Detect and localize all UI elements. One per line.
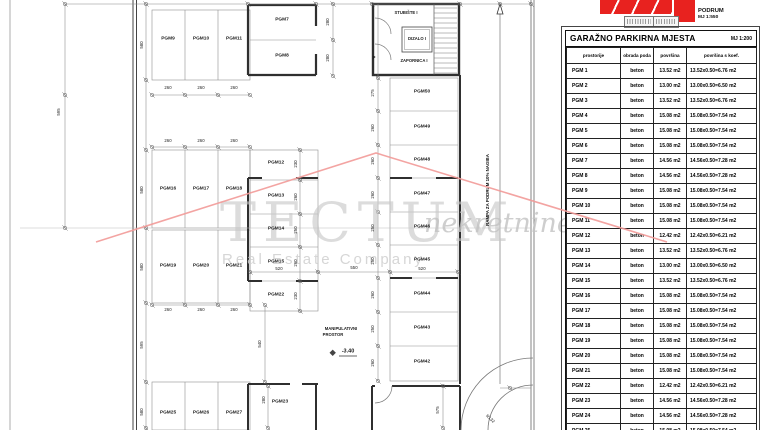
table-cell: 14.56 m2 — [654, 394, 687, 409]
table-cell: beton — [621, 229, 654, 244]
table-cell: beton — [621, 364, 654, 379]
table-column-header: površina — [654, 48, 687, 64]
table-row: PGM 21beton15.08 m215.08x0.50=7.54 m2 — [567, 364, 757, 379]
table-cell: PGM 25 — [567, 424, 621, 430]
table-cell: 15.08 m2 — [654, 334, 687, 349]
table-cell: 15.08x0.50=7.54 m2 — [687, 109, 757, 124]
table-cell: 15.08 m2 — [654, 109, 687, 124]
plan-label: R132 — [485, 414, 496, 424]
table-column-header: obrada poda — [621, 48, 654, 64]
table-cell: 14.56 m2 — [654, 169, 687, 184]
table-cell: beton — [621, 109, 654, 124]
plan-label: PGM7 — [275, 19, 289, 24]
table-cell: 14.56x0.50=7.28 m2 — [687, 409, 757, 424]
plan-label: 260 — [294, 259, 298, 266]
table-cell: beton — [621, 124, 654, 139]
table-cell: PGM 2 — [567, 79, 621, 94]
table-cell: 15.08x0.50=7.54 m2 — [687, 334, 757, 349]
table-column-header: prostorije — [567, 48, 621, 64]
table-row: PGM 1beton13.52 m213.52x0.50=6.76 m2 — [567, 64, 757, 79]
plan-label: PGM45 — [414, 259, 430, 264]
plan-label: PGM9 — [161, 38, 175, 43]
table-cell: 12.42 m2 — [654, 229, 687, 244]
table-cell: PGM 17 — [567, 304, 621, 319]
table-cell: 15.08 m2 — [654, 124, 687, 139]
table-cell: beton — [621, 304, 654, 319]
plan-label: -3.40 — [342, 349, 355, 355]
table-cell: 13.52x0.50=6.76 m2 — [687, 244, 757, 259]
plan-label: PGM22 — [268, 294, 284, 299]
plan-label: 520 — [275, 267, 282, 271]
table-cell: 15.08x0.50=7.54 m2 — [687, 289, 757, 304]
table-cell: beton — [621, 79, 654, 94]
table-row: PGM 2beton13.00 m213.00x0.50=6.50 m2 — [567, 79, 757, 94]
plan-label: 260 — [371, 124, 375, 131]
plan-label: 230 — [294, 292, 298, 299]
plan-label: 580 — [140, 408, 144, 415]
table-cell: 12.42x0.50=6.21 m2 — [687, 229, 757, 244]
table-cell: 13.00x0.50=6.50 m2 — [687, 259, 757, 274]
plan-label: 280 — [326, 54, 330, 61]
table-cell: PGM 13 — [567, 244, 621, 259]
table-cell: 15.08 m2 — [654, 139, 687, 154]
table-cell: PGM 1 — [567, 64, 621, 79]
table-cell: 14.56x0.50=7.28 m2 — [687, 154, 757, 169]
table-cell: 14.56 m2 — [654, 154, 687, 169]
plan-label: PGM21 — [226, 265, 242, 270]
table-cell: beton — [621, 64, 654, 79]
table-cell: 15.08x0.50=7.54 m2 — [687, 139, 757, 154]
table-row: PGM 18beton15.08 m215.08x0.50=7.54 m2 — [567, 319, 757, 334]
table-cell: beton — [621, 244, 654, 259]
table-cell: 13.00 m2 — [654, 79, 687, 94]
table-cell: PGM 24 — [567, 409, 621, 424]
plan-label: 260 — [371, 359, 375, 366]
plan-label: 280 — [326, 18, 330, 25]
table-cell: 15.08x0.50=7.54 m2 — [687, 364, 757, 379]
table-cell: 13.52 m2 — [654, 64, 687, 79]
table-cell: PGM 8 — [567, 169, 621, 184]
table-cell: beton — [621, 349, 654, 364]
plan-label: PGM47 — [414, 193, 430, 198]
plan-label: 580 — [140, 263, 144, 270]
table-cell: 13.52 m2 — [654, 244, 687, 259]
table-cell: 15.08 m2 — [654, 319, 687, 334]
table-cell: 13.52 m2 — [654, 94, 687, 109]
table-cell: 12.42x0.50=6.21 m2 — [687, 379, 757, 394]
plan-label: 280 — [262, 396, 266, 403]
parking-table: GARAŽNO PARKIRNA MJESTA MJ 1:200 prostor… — [565, 30, 757, 430]
table-cell: 15.08 m2 — [654, 199, 687, 214]
plan-label: 580 — [140, 41, 144, 48]
table-cell: beton — [621, 289, 654, 304]
table-scale: MJ 1:200 — [731, 36, 756, 42]
table-cell: PGM 10 — [567, 199, 621, 214]
table-cell: beton — [621, 139, 654, 154]
table-row: PGM 12beton12.42 m212.42x0.50=6.21 m2 — [567, 229, 757, 244]
table-cell: PGM 19 — [567, 334, 621, 349]
table-row: PGM 24beton14.56 m214.56x0.50=7.28 m2 — [567, 409, 757, 424]
plan-label: PGM27 — [226, 412, 242, 417]
table-cell: beton — [621, 184, 654, 199]
table-cell: 15.08 m2 — [654, 304, 687, 319]
table-cell: 15.08 m2 — [654, 364, 687, 379]
table-row: PGM 17beton15.08 m215.08x0.50=7.54 m2 — [567, 304, 757, 319]
table-cell: 14.56 m2 — [654, 409, 687, 424]
plan-label: 230 — [294, 160, 298, 167]
plan-label: 250 — [371, 325, 375, 332]
plan-label: PGM25 — [160, 412, 176, 417]
table-row: PGM 10beton15.08 m215.08x0.50=7.54 m2 — [567, 199, 757, 214]
plan-label: 595 — [140, 341, 144, 348]
table-cell: 15.08 m2 — [654, 214, 687, 229]
plan-label: PGM14 — [268, 228, 284, 233]
plan-label: 550 — [350, 266, 357, 270]
table-cell: PGM 21 — [567, 364, 621, 379]
table-cell: PGM 15 — [567, 274, 621, 289]
plan-label: 260 — [164, 308, 171, 312]
table-cell: 15.08 m2 — [654, 349, 687, 364]
table-cell: beton — [621, 154, 654, 169]
table-cell: PGM 23 — [567, 394, 621, 409]
table-cell: PGM 5 — [567, 124, 621, 139]
plan-label: 250 — [371, 224, 375, 231]
plan-label: 595 — [57, 108, 61, 115]
plan-label: PGM26 — [193, 412, 209, 417]
table-cell: 15.08x0.50=7.54 m2 — [687, 199, 757, 214]
stamp-text-smudge — [627, 19, 651, 24]
plan-label: PGM48 — [414, 159, 430, 164]
sheet-scale-label: MJ 1:550 — [698, 15, 724, 21]
table-row: PGM 14beton13.00 m213.00x0.50=6.50 m2 — [567, 259, 757, 274]
table-cell: 13.52x0.50=6.76 m2 — [687, 64, 757, 79]
plan-label: 520 — [418, 267, 425, 271]
plan-label: PGM42 — [414, 361, 430, 366]
plan-label: 250 — [294, 226, 298, 233]
table-row: PGM 16beton15.08 m215.08x0.50=7.54 m2 — [567, 289, 757, 304]
stamp-text-smudge — [656, 19, 676, 24]
plan-label: 260 — [294, 193, 298, 200]
table-title: GARAŽNO PARKIRNA MJESTA — [566, 34, 695, 43]
table-cell: 14.56x0.50=7.28 m2 — [687, 169, 757, 184]
table-row: PGM 22beton12.42 m212.42x0.50=6.21 m2 — [567, 379, 757, 394]
table-cell: 13.00x0.50=6.50 m2 — [687, 79, 757, 94]
table-cell: beton — [621, 319, 654, 334]
table-cell: 13.52x0.50=6.76 m2 — [687, 94, 757, 109]
table-cell: 12.42 m2 — [654, 379, 687, 394]
plan-label: 260 — [230, 308, 237, 312]
table-cell: 13.52 m2 — [654, 274, 687, 289]
plan-label: 250 — [371, 257, 375, 264]
table-row: PGM 23beton14.56 m214.56x0.50=7.28 m2 — [567, 394, 757, 409]
table-cell: PGM 4 — [567, 109, 621, 124]
table-cell: 15.08x0.50=7.54 m2 — [687, 184, 757, 199]
plan-label: PGM17 — [193, 188, 209, 193]
plan-label: ZAPORNICA I — [400, 59, 427, 63]
table-cell: PGM 9 — [567, 184, 621, 199]
table-cell: beton — [621, 424, 654, 430]
table-title-row: GARAŽNO PARKIRNA MJESTA MJ 1:200 — [566, 31, 756, 47]
plan-label: PGM10 — [193, 38, 209, 43]
table-cell: 14.56x0.50=7.28 m2 — [687, 394, 757, 409]
table-row: PGM 9beton15.08 m215.08x0.50=7.54 m2 — [567, 184, 757, 199]
plan-label: 260 — [371, 191, 375, 198]
table-cell: 15.08x0.50=7.54 m2 — [687, 214, 757, 229]
table-cell: PGM 20 — [567, 349, 621, 364]
table-cell: 15.08 m2 — [654, 289, 687, 304]
table-cell: 13.00 m2 — [654, 259, 687, 274]
table-row: PGM 25beton15.08 m215.08x0.50=7.54 m2 — [567, 424, 757, 430]
floor-plan-sheet: TECTUM nekretnine Real Estate Company PG… — [0, 0, 764, 430]
plan-label: 260 — [197, 86, 204, 90]
table-row: PGM 7beton14.56 m214.56x0.50=7.28 m2 — [567, 154, 757, 169]
table-cell: PGM 16 — [567, 289, 621, 304]
plan-label: MANIPULATIVNI — [325, 327, 358, 331]
plan-label: 540 — [258, 340, 262, 347]
table-cell: 15.08x0.50=7.54 m2 — [687, 349, 757, 364]
plan-label: 260 — [197, 308, 204, 312]
plan-label: PGM43 — [414, 327, 430, 332]
plan-label: 260 — [230, 139, 237, 143]
table-cell: beton — [621, 394, 654, 409]
table-cell: beton — [621, 199, 654, 214]
table-row: PGM 6beton15.08 m215.08x0.50=7.54 m2 — [567, 139, 757, 154]
table-cell: PGM 18 — [567, 319, 621, 334]
table-row: PGM 11beton15.08 m215.08x0.50=7.54 m2 — [567, 214, 757, 229]
plan-label: 260 — [371, 291, 375, 298]
table-cell: PGM 12 — [567, 229, 621, 244]
table-cell: beton — [621, 169, 654, 184]
table-row: PGM 5beton15.08 m215.08x0.50=7.54 m2 — [567, 124, 757, 139]
table-cell: 15.08 m2 — [654, 184, 687, 199]
plan-label: PGM46 — [414, 226, 430, 231]
plan-label: PGM11 — [226, 38, 242, 43]
table-row: PGM 20beton15.08 m215.08x0.50=7.54 m2 — [567, 349, 757, 364]
table-cell: 15.08x0.50=7.54 m2 — [687, 319, 757, 334]
table-row: PGM 8beton14.56 m214.56x0.50=7.28 m2 — [567, 169, 757, 184]
plan-label: 275 — [371, 89, 375, 96]
table-cell: 15.08x0.50=7.54 m2 — [687, 304, 757, 319]
table-row: PGM 3beton13.52 m213.52x0.50=6.76 m2 — [567, 94, 757, 109]
table-row: PGM 15beton13.52 m213.52x0.50=6.76 m2 — [567, 274, 757, 289]
plan-label: PGM13 — [268, 195, 284, 200]
parking-spaces-table: prostorijeobrada podapovršinapovršina s … — [566, 47, 757, 430]
plan-label: P — [373, 56, 376, 60]
table-cell: PGM 11 — [567, 214, 621, 229]
plan-label: PGM20 — [193, 265, 209, 270]
table-cell: 13.52x0.50=6.76 m2 — [687, 274, 757, 289]
plan-label: PGM12 — [268, 162, 284, 167]
plan-label: 575 — [436, 406, 440, 413]
table-cell: beton — [621, 94, 654, 109]
table-cell: PGM 7 — [567, 154, 621, 169]
plan-label: 260 — [371, 157, 375, 164]
plan-label: PGM23 — [272, 401, 288, 406]
table-cell: 15.08x0.50=7.54 m2 — [687, 424, 757, 430]
plan-label: DIZALO I — [408, 37, 426, 41]
plan-label: 260 — [164, 139, 171, 143]
plan-label: PGM50 — [414, 91, 430, 96]
plan-label: PGM44 — [414, 293, 430, 298]
table-row: PGM 19beton15.08 m215.08x0.50=7.54 m2 — [567, 334, 757, 349]
table-cell: PGM 14 — [567, 259, 621, 274]
plan-label: 260 — [164, 86, 171, 90]
plan-label: PGM19 — [160, 265, 176, 270]
table-row: PGM 13beton13.52 m213.52x0.50=6.76 m2 — [567, 244, 757, 259]
table-row: PGM 4beton15.08 m215.08x0.50=7.54 m2 — [567, 109, 757, 124]
table-cell: 15.08x0.50=7.54 m2 — [687, 124, 757, 139]
table-cell: PGM 22 — [567, 379, 621, 394]
plan-label: RAMPA ZA PODRUM 10% NAGIBA — [486, 154, 490, 226]
plan-label: 260 — [230, 86, 237, 90]
plan-label: 580 — [140, 186, 144, 193]
table-cell: beton — [621, 379, 654, 394]
table-cell: beton — [621, 409, 654, 424]
sheet-caption: PODRUM MJ 1:550 — [698, 8, 724, 21]
plan-label: STUBIŠTE I — [394, 11, 417, 15]
table-cell: 15.08 m2 — [654, 424, 687, 430]
table-header-row: prostorijeobrada podapovršinapovršina s … — [567, 48, 757, 64]
table-cell: PGM 6 — [567, 139, 621, 154]
table-cell: PGM 3 — [567, 94, 621, 109]
table-cell: beton — [621, 214, 654, 229]
table-column-header: površina s koef. — [687, 48, 757, 64]
table-cell: beton — [621, 259, 654, 274]
table-cell: beton — [621, 334, 654, 349]
plan-label: PROSTOR — [323, 333, 344, 337]
logo-roof-bar — [600, 0, 672, 14]
plan-label: PGM16 — [160, 188, 176, 193]
plan-label: PGM8 — [275, 55, 289, 60]
plan-label: PGM18 — [226, 188, 242, 193]
plan-label: PGM49 — [414, 126, 430, 131]
plan-label: PGM15 — [268, 261, 284, 266]
plan-label: 260 — [197, 139, 204, 143]
table-cell: beton — [621, 274, 654, 289]
